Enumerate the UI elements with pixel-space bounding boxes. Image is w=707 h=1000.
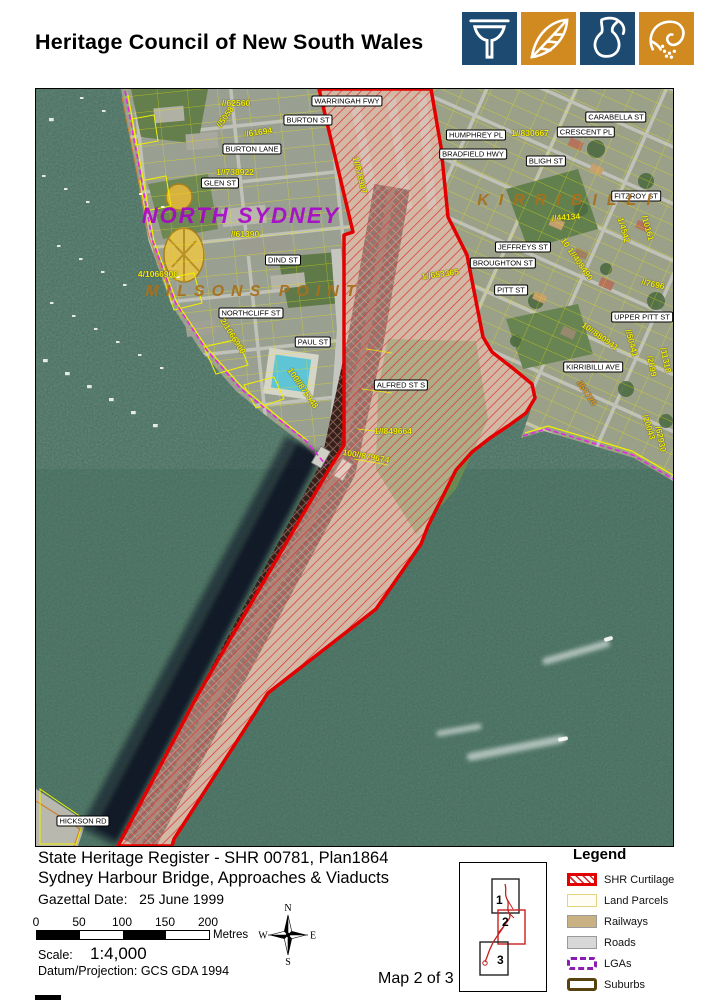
lot-number-label: 4/1066900	[138, 269, 178, 279]
lot-number-label: 2/1066900	[218, 316, 248, 355]
compass-north-label: N	[284, 903, 291, 914]
lot-number-label: 100//879674	[342, 447, 390, 465]
shr-title-line1: State Heritage Register - SHR 00781, Pla…	[38, 849, 388, 868]
page-title: Heritage Council of New South Wales	[35, 30, 423, 55]
scalebar-tick: 100	[112, 915, 132, 929]
column-icon	[462, 12, 517, 65]
street-label: PITT ST	[494, 285, 528, 296]
lot-number-label: //7696	[640, 277, 665, 292]
datum-projection: Datum/Projection: GCS GDA 1994	[38, 964, 229, 978]
suburb-label: MILSONS POINT	[145, 283, 362, 301]
jug-icon	[580, 12, 635, 65]
legend-label: Suburbs	[604, 979, 645, 991]
legend-label: Railways	[604, 916, 648, 928]
street-label: BURTON LANE	[222, 144, 281, 155]
lot-number-label: //61390	[231, 229, 259, 239]
scale-label: Scale:	[38, 948, 73, 962]
legend-item-railways: Railways	[567, 911, 705, 932]
legend-item-roads: Roads	[567, 932, 705, 953]
street-label: DIND ST	[265, 255, 301, 266]
suburb-label: NORTH SYDNEY	[142, 203, 340, 229]
legend-swatch-roads	[567, 936, 597, 949]
inset-label-1: 1	[496, 893, 503, 907]
map-label-layer: WARRINGAH FWYBURTON STBURTON LANEGLEN ST…	[36, 89, 673, 846]
lot-number-label: //5058	[214, 104, 236, 129]
page-edge-mark	[35, 995, 61, 1000]
street-label: BURTON ST	[283, 115, 332, 126]
inset-locator-map: 1 2 3	[459, 862, 547, 992]
street-label: HICKSON RD	[56, 816, 109, 827]
leaf-icon	[521, 12, 576, 65]
legend: Legend SHR CurtilageLand ParcelsRailways…	[567, 846, 705, 995]
street-label: BRADFIELD HWY	[439, 149, 507, 160]
inset-label-3: 3	[497, 953, 504, 967]
legend-swatch-lgas	[567, 957, 597, 970]
legend-swatch-railways	[567, 915, 597, 928]
lot-number-label: 100//875948	[285, 366, 320, 410]
scalebar-tick: 0	[33, 915, 40, 929]
inset-label-2: 2	[502, 915, 509, 929]
lot-number-label: /2699	[645, 355, 659, 378]
lot-number-label: //50441	[623, 328, 640, 358]
street-label: BLIGH ST	[526, 156, 566, 167]
legend-item-shr: SHR Curtilage	[567, 869, 705, 890]
hand-seeds-icon	[639, 12, 694, 65]
scalebar-tick: 200	[198, 915, 218, 929]
compass-south-label: S	[285, 957, 291, 967]
compass-rose: N E S W	[256, 901, 320, 967]
street-label: JEFFREYS ST	[495, 242, 551, 253]
gazettal-value: 25 June 1999	[139, 891, 224, 907]
street-label: UPPER PITT ST	[611, 312, 673, 323]
lot-number-label: 1/4542	[616, 216, 633, 244]
street-label: HUMPHREY PL	[446, 130, 506, 141]
lot-number-label: /10161	[640, 214, 657, 242]
lot-number-label: 1//738922	[216, 167, 254, 177]
aerial-map: WARRINGAH FWYBURTON STBURTON LANEGLEN ST…	[35, 88, 674, 847]
legend-label: Roads	[604, 937, 636, 949]
scalebar-tick: 150	[155, 915, 175, 929]
gazettal-label: Gazettal Date:	[38, 891, 128, 907]
street-label: KIRRIBILLI AVE	[563, 362, 623, 373]
lot-number-label: 1//849664	[374, 426, 412, 436]
legend-item-lgas: LGAs	[567, 953, 705, 974]
shr-title-line2: Sydney Harbour Bridge, Approaches & Viad…	[38, 869, 389, 888]
legend-title: Legend	[573, 846, 705, 863]
scalebar-unit: Metres	[213, 929, 248, 941]
street-label: ALFRED ST S	[374, 380, 428, 391]
scale-value: 1:4,000	[90, 944, 147, 964]
lot-number-label: //44134	[551, 211, 580, 223]
lot-number-label: 10//880941	[580, 320, 621, 353]
street-label: CRESCENT PL	[557, 127, 615, 138]
heritage-map-page: { "header": { "title": "Heritage Council…	[0, 0, 707, 1000]
legend-swatch-shr	[567, 873, 597, 886]
street-label: GLEN ST	[201, 178, 239, 189]
legend-item-parcels: Land Parcels	[567, 890, 705, 911]
lot-number-label: 10 1//408490	[559, 236, 596, 282]
scalebar-segments	[36, 930, 210, 940]
lot-number-label: 1//873987	[351, 155, 370, 194]
map-number: Map 2 of 3	[378, 970, 454, 988]
street-label: PAUL ST	[295, 337, 331, 348]
legend-item-suburbs: Suburbs	[567, 974, 705, 995]
lot-number-label: 1//830667	[511, 128, 549, 138]
legend-swatch-suburbs	[567, 978, 597, 991]
legend-items: SHR CurtilageLand ParcelsRailwaysRoadsLG…	[567, 869, 705, 995]
street-label: NORTHCLIFF ST	[218, 308, 283, 319]
legend-label: LGAs	[604, 958, 632, 970]
gazettal-date: Gazettal Date: 25 June 1999	[38, 891, 224, 907]
heritage-council-logo	[462, 12, 694, 65]
suburb-label: KIRRIBILLI	[477, 192, 661, 210]
legend-label: SHR Curtilage	[604, 874, 674, 886]
legend-label: Land Parcels	[604, 895, 668, 907]
compass-west-label: W	[258, 931, 268, 942]
lot-number-label: /11318	[658, 346, 673, 373]
lot-number-label: //50720	[575, 379, 599, 408]
street-label: WARRINGAH FWY	[311, 96, 382, 107]
lot-number-label: //61694	[243, 125, 272, 139]
lot-number-label: /62930	[653, 425, 668, 453]
street-label: CARABELLA ST	[585, 112, 646, 123]
inset-box-3	[480, 942, 508, 975]
compass-east-label: E	[310, 931, 316, 942]
lot-number-label: 1//653365	[421, 266, 460, 281]
legend-swatch-parcels	[567, 894, 597, 907]
street-label: BROUGHTON ST	[470, 258, 536, 269]
scalebar-tick: 50	[72, 915, 85, 929]
